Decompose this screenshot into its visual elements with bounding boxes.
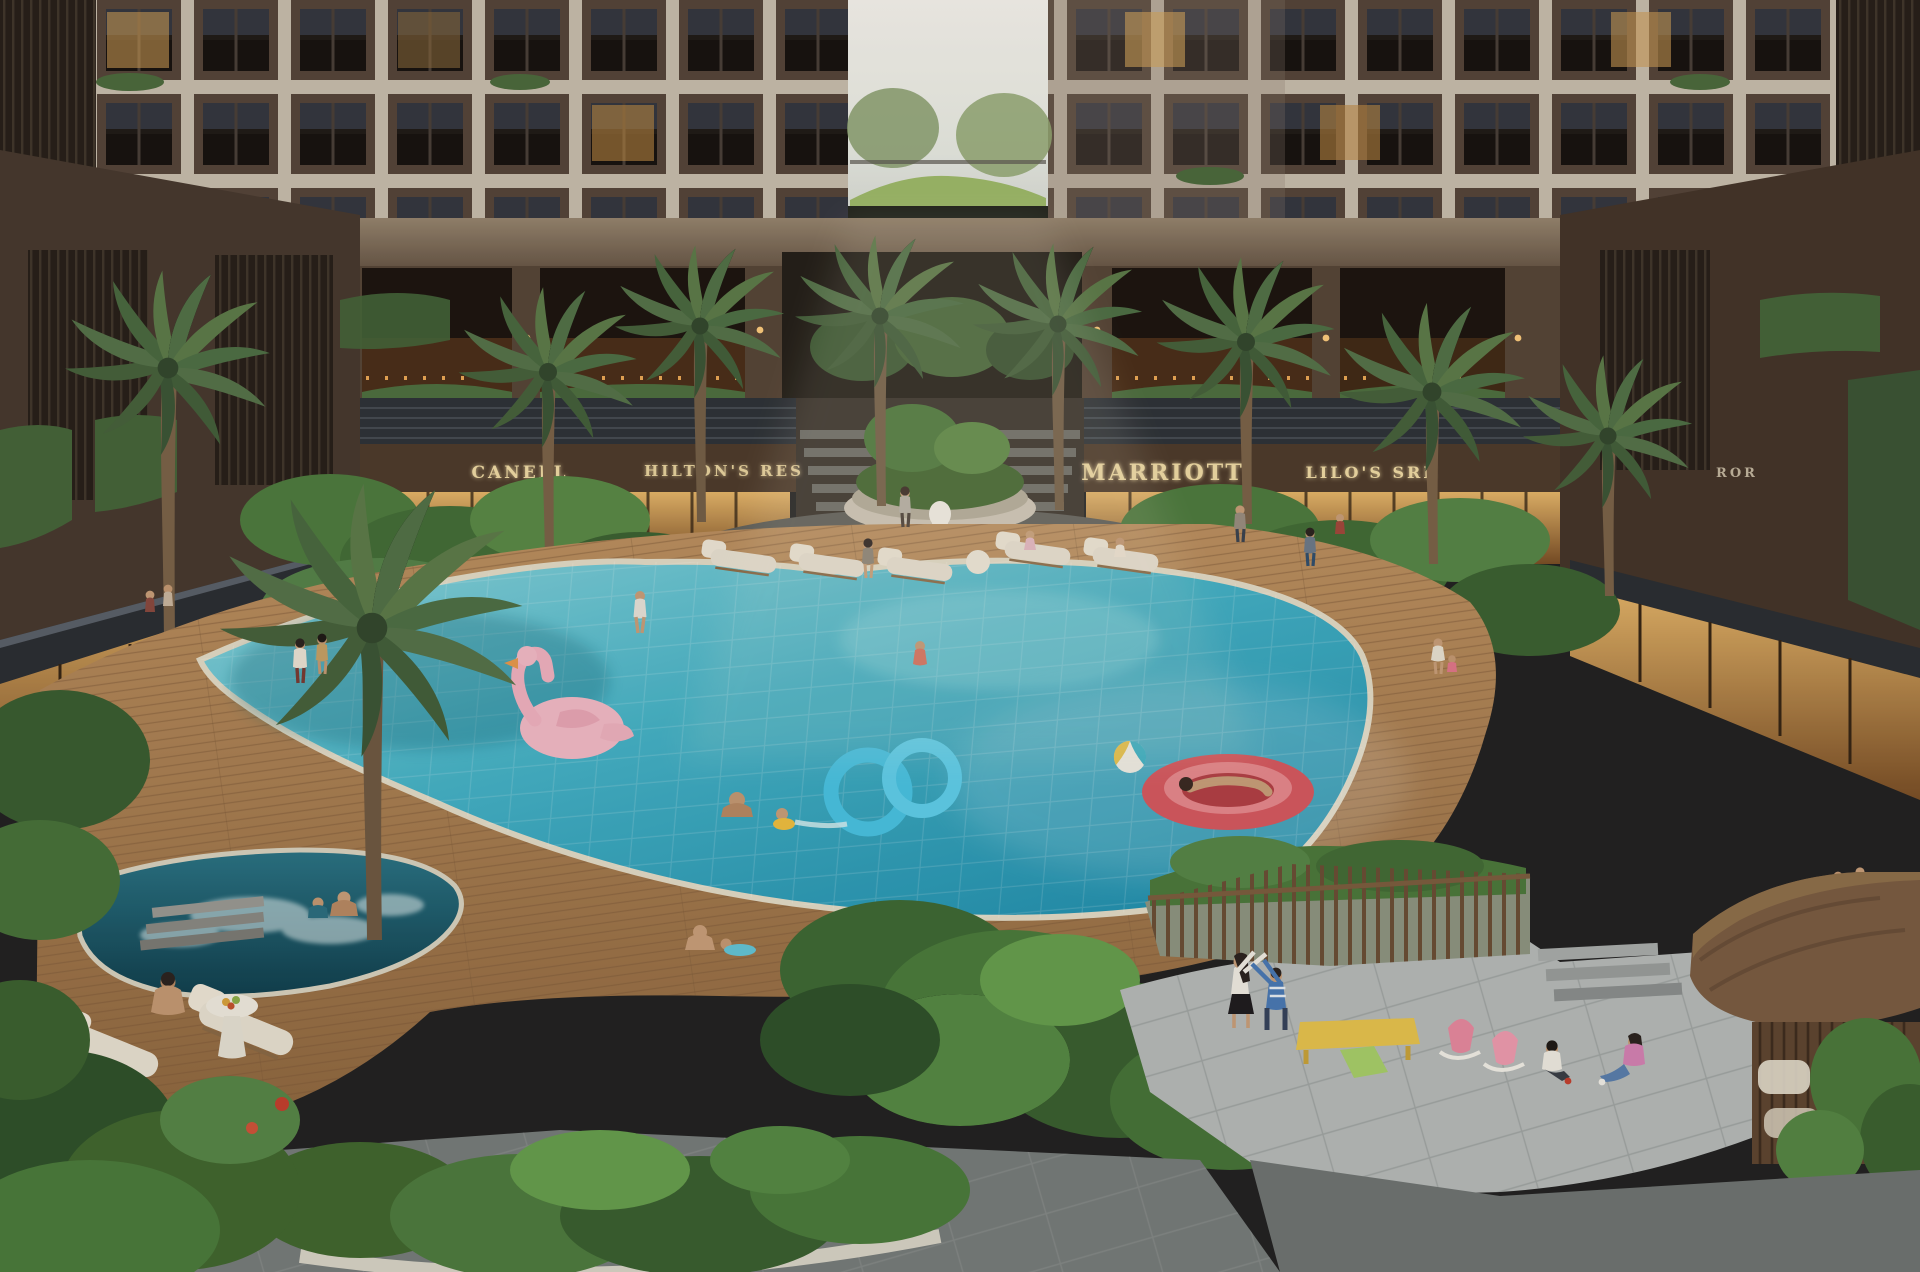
architectural-render: CANELL CANELL HILTON'S RES HILTON'S RES … <box>0 0 1920 1272</box>
scene-canvas: CANELL CANELL HILTON'S RES HILTON'S RES … <box>0 0 1920 1272</box>
vignette <box>0 0 1920 1272</box>
